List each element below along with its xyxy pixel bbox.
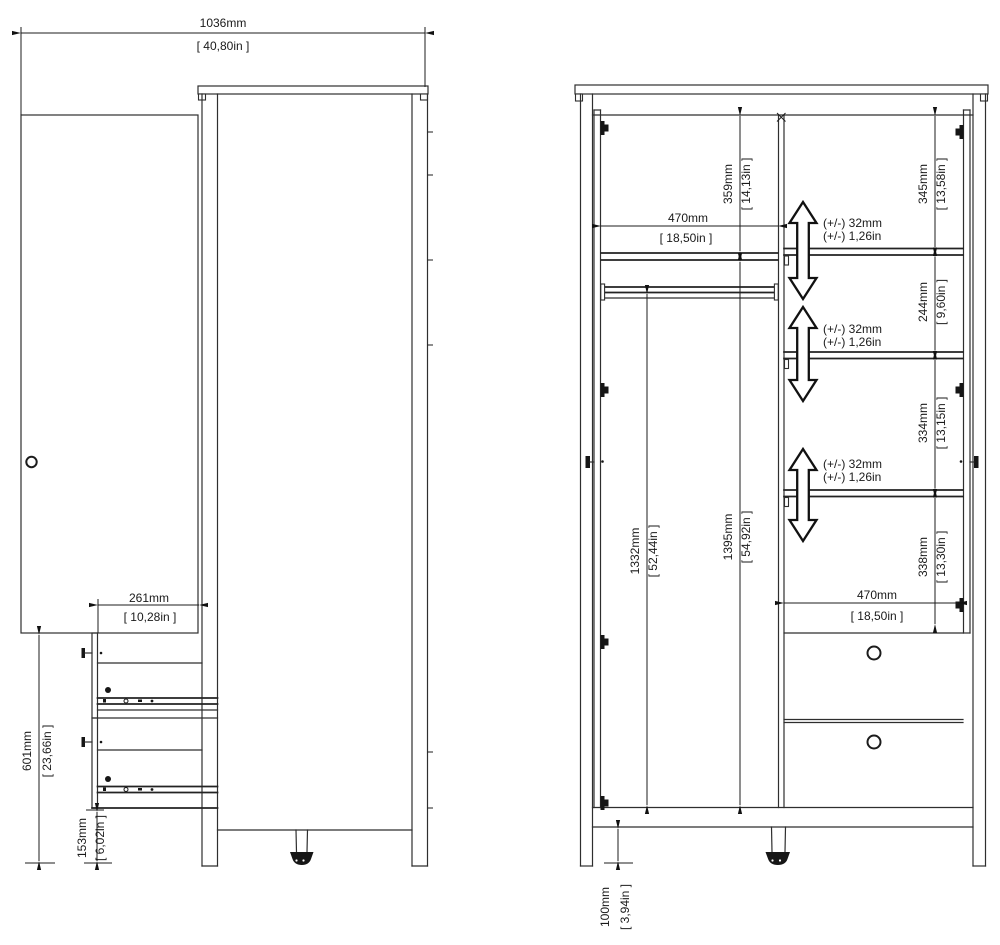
- dim-label-mm: 153mm: [75, 818, 89, 858]
- hinge-icon: [956, 125, 964, 139]
- dim-label-in: [ 3,94in ]: [618, 884, 632, 930]
- dim-label-mm: 470mm: [668, 211, 708, 225]
- right-door-edge: [956, 110, 979, 633]
- wardrobe-dimension-drawing: 1036mm [ 40,80in ] 261mm [ 10,28in ] 601…: [0, 0, 1000, 945]
- center-divider: [777, 113, 786, 808]
- open-drawer-2: [82, 718, 218, 808]
- dim-right-section-3: 334mm [ 13,15in ]: [916, 360, 948, 489]
- adjust-label-mm: (+/-) 32mm: [823, 457, 882, 471]
- technical-drawing-canvas: 1036mm [ 40,80in ] 261mm [ 10,28in ] 601…: [0, 0, 1000, 945]
- foot-icon: [766, 852, 791, 865]
- hinge-icon: [601, 635, 609, 649]
- dim-plinth-height: 153mm [ 6,02in ]: [75, 810, 112, 863]
- hinge-icon: [956, 383, 964, 397]
- hinge-icon: [601, 121, 609, 135]
- dim-label-mm: 1395mm: [721, 514, 735, 561]
- front-top-panel: [575, 85, 988, 101]
- dim-label-mm: 345mm: [916, 164, 930, 204]
- dim-label-in: [ 23,66in ]: [40, 725, 54, 778]
- dim-label-mm: 359mm: [721, 164, 735, 204]
- dim-right-section-1: 345mm [ 13,58in ]: [916, 116, 948, 247]
- dim-label-in: [ 13,58in ]: [934, 158, 948, 211]
- door-knob-icon: [960, 456, 979, 468]
- dim-right-section-4: 338mm [ 13,30in ]: [916, 498, 948, 624]
- adjust-arrow-icon: [790, 449, 817, 541]
- front-center-leg: [766, 827, 791, 865]
- dim-drawer-extension: 261mm [ 10,28in ]: [98, 591, 199, 633]
- side-frame: [202, 94, 433, 866]
- hinge-icon: [601, 383, 609, 397]
- dim-label-mm: 1036mm: [200, 16, 247, 30]
- dim-top-section-height: 359mm [ 14,13in ]: [721, 116, 753, 251]
- dim-label-in: [ 40,80in ]: [197, 39, 250, 53]
- dim-label-mm: 1332mm: [628, 528, 642, 575]
- dim-label-in: [ 9,60in ]: [934, 279, 948, 325]
- door-knob-icon: [26, 457, 36, 467]
- adjust-label-in: (+/-) 1,26in: [823, 470, 881, 484]
- dim-label-in: [ 6,02in ]: [93, 815, 107, 861]
- dim-label-in: [ 54,92in ]: [739, 511, 753, 564]
- dim-label-mm: 334mm: [916, 403, 930, 443]
- drawer-knob-icon: [868, 647, 881, 660]
- dim-label-in: [ 52,44in ]: [646, 525, 660, 578]
- right-shelf-3: [784, 490, 963, 507]
- dim-label-in: [ 18,50in ]: [660, 231, 713, 245]
- front-carcass: [581, 94, 986, 866]
- dim-label-mm: 470mm: [857, 588, 897, 602]
- side-center-leg: [290, 830, 314, 865]
- drawer-knob-icon: [868, 736, 881, 749]
- hinge-icon: [956, 598, 964, 612]
- dim-label-in: [ 13,15in ]: [934, 397, 948, 450]
- dim-rail-clearance-height: 1332mm [ 52,44in ]: [628, 294, 660, 805]
- side-top-panel: [198, 86, 428, 100]
- dim-foot-height: 100mm [ 3,94in ]: [598, 829, 633, 930]
- adjust-arrow-icon: [790, 202, 817, 299]
- front-drawer-2: [784, 720, 963, 749]
- left-shelf: [601, 253, 778, 260]
- dim-label-in: [ 13,30in ]: [934, 531, 948, 584]
- dim-label-mm: 601mm: [20, 731, 34, 771]
- dim-label-mm: 100mm: [598, 887, 612, 927]
- adjust-arrow-icon: [790, 307, 817, 401]
- adjust-label-mm: (+/-) 32mm: [823, 322, 882, 336]
- open-drawer-1: [82, 633, 218, 718]
- dim-label-in: [ 10,28in ]: [124, 610, 177, 624]
- dim-right-section-2: 244mm [ 9,60in ]: [916, 257, 948, 351]
- dim-left-interior-width: 470mm [ 18,50in ]: [601, 211, 778, 245]
- front-drawer-1: [784, 633, 963, 660]
- dim-right-interior-width: 470mm [ 18,50in ]: [784, 588, 958, 623]
- dim-overall-width: 1036mm [ 40,80in ]: [21, 16, 425, 115]
- dim-lower-section-height: 601mm [ 23,66in ]: [20, 635, 55, 863]
- right-shelf-1: [784, 249, 963, 266]
- foot-icon: [290, 852, 314, 865]
- adjustability-note: (+/-) 32mm (+/-) 1,26in: [823, 216, 882, 243]
- dim-label-in: [ 14,13in ]: [739, 158, 753, 211]
- back-edge-fitting-marks: [428, 132, 434, 808]
- adjustability-note: (+/-) 32mm (+/-) 1,26in: [823, 457, 882, 484]
- dim-label-mm: 338mm: [916, 537, 930, 577]
- dim-interior-height: 1395mm [ 54,92in ]: [721, 262, 753, 805]
- right-shelf-2: [784, 352, 963, 369]
- open-door-panel: [21, 115, 198, 633]
- dim-label-mm: 261mm: [129, 591, 169, 605]
- dim-label-in: [ 18,50in ]: [851, 609, 904, 623]
- adjust-label-in: (+/-) 1,26in: [823, 335, 881, 349]
- adjust-label-in: (+/-) 1,26in: [823, 229, 881, 243]
- left-door-edge: [586, 110, 609, 810]
- adjust-label-mm: (+/-) 32mm: [823, 216, 882, 230]
- adjustability-note: (+/-) 32mm (+/-) 1,26in: [823, 322, 882, 349]
- side-view: 1036mm [ 40,80in ] 261mm [ 10,28in ] 601…: [20, 16, 433, 866]
- hanging-rail: [601, 284, 778, 300]
- dim-label-mm: 244mm: [916, 282, 930, 322]
- front-view: 470mm [ 18,50in ] 359mm [ 14,13in ] 1395…: [575, 85, 988, 930]
